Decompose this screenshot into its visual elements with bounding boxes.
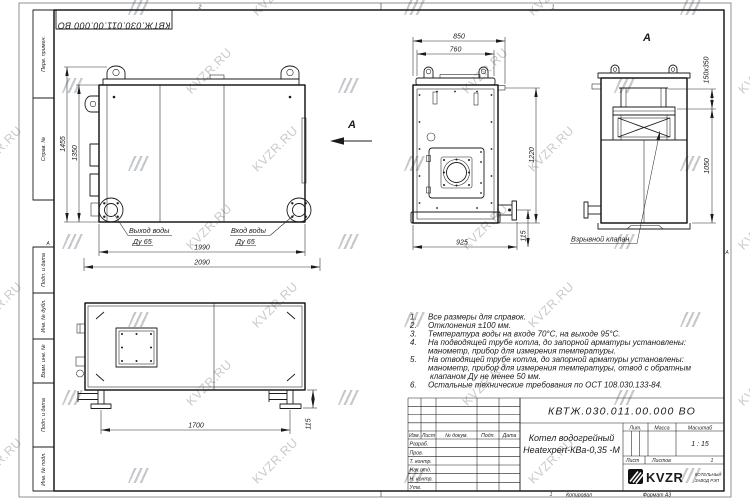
stamp-row-prov: Пров.	[410, 450, 424, 456]
stamp-designation: КВТЖ.030.011.00.000 ВО	[548, 406, 696, 418]
margin-label-perv-primen: Перв. примен.	[41, 36, 47, 72]
dim-flue-150x350: 150х350	[704, 56, 711, 83]
stamp-lit-label: Лит.	[628, 426, 641, 432]
rear-view: А	[570, 32, 716, 244]
stamp-row-t-kontr: Т. контр.	[410, 459, 432, 465]
stamp-header-list: Лист	[421, 433, 436, 439]
drawing-sheet: KVZR.RUKVZR.RUKVZR.RUKVZR.RUKVZR.RUKVZR.…	[0, 0, 750, 500]
top-designation-box: КВТЖ.030.011.00.000 ВО	[56, 10, 172, 31]
dim-1350: 1350	[72, 145, 79, 161]
view-a-arrow-label: А	[347, 119, 356, 131]
dim-850: 850	[453, 34, 465, 41]
note-line: Остальные технические требования по ОСТ …	[428, 381, 662, 390]
outlet-dn-label: Ду 65	[132, 237, 153, 246]
dim-760: 760	[450, 47, 462, 54]
kvzr-logo: KVZR КОТЕЛЬНЫЙ ЗАВОД РЭП	[628, 469, 721, 485]
stamp-header-doc-no: № докум.	[445, 433, 468, 439]
dim-925: 925	[456, 240, 468, 247]
dim-2090: 2090	[193, 260, 210, 267]
dim-115-front: 115	[521, 230, 528, 241]
note-num: 5.	[410, 355, 417, 364]
zone-number-bottom: 1	[550, 492, 553, 498]
copied-label: Копировал	[566, 492, 592, 498]
stamp-row-razrab: Разраб.	[410, 442, 429, 448]
margin-label-inv-dubl: Инв. № дубл.	[41, 299, 47, 332]
side-view: Выход воды Ду 65 Вход воды Ду 65 1990 20…	[60, 66, 372, 271]
kvzr-logo-sub1: КОТЕЛЬНЫЙ	[695, 472, 721, 477]
stamp-row-n-kontr: Н. контр.	[410, 476, 433, 482]
kvzr-logo-text: KVZR	[646, 470, 684, 485]
product-name-line2: Heatexpert-КВа-0,35 -М	[523, 445, 620, 455]
note-num: 4.	[410, 338, 417, 347]
dim-1220: 1220	[529, 147, 536, 163]
margin-columns: Перв. примен. Справ. № Подп. и дата Инв.…	[33, 10, 54, 491]
rear-view-title: А	[642, 32, 651, 44]
margin-label-podp-data-2: Подп. и дата	[41, 398, 47, 432]
designation-rotated: КВТЖ.030.011.00.000 ВО	[57, 21, 170, 31]
front-view: 850 760 1220 115 925	[411, 34, 540, 251]
technical-notes: 1. Все размеры для справок. 2. Отклонени…	[409, 313, 691, 390]
note-num: 6.	[410, 381, 417, 390]
stamp-header-data: Дата	[502, 433, 517, 439]
dim-1700: 1700	[188, 423, 204, 430]
stamp-header-podp: Подп.	[481, 433, 495, 439]
stamp-header-izm: Изм.	[409, 433, 420, 439]
zone-number-top-left: 2	[198, 5, 202, 11]
plan-view: 1700 115	[76, 303, 317, 434]
stamp-row-utv: Утв.	[410, 485, 422, 491]
margin-label-podp-data-1: Подп. и дата	[41, 253, 47, 287]
dim-1455: 1455	[60, 136, 67, 152]
stamp-listov-label: Листов	[651, 458, 671, 464]
zone-letter-left: А	[45, 241, 50, 247]
drawing-canvas: 2 1 1 А А Копировал Формат А3 Перв. прим…	[0, 0, 750, 500]
zone-number-top-right: 1	[552, 5, 555, 11]
stamp-row-nach-otd: Нач.отд.	[410, 468, 432, 474]
stamp-listov-value: 1	[711, 458, 714, 464]
zone-letter-right: А	[724, 250, 729, 256]
dim-1990: 1990	[194, 245, 210, 252]
margin-label-sprav-no: Справ. №	[41, 137, 47, 162]
outlet-label: Выход воды	[129, 226, 170, 235]
title-block: Изм. Лист № докум. Подп. Дата Разраб. Пр…	[408, 398, 724, 491]
stamp-scale-value: 1 : 15	[691, 441, 709, 448]
view-a-arrow-icon	[330, 137, 344, 145]
dim-115-plan: 115	[306, 418, 313, 429]
stamp-massa-label: Масса	[654, 426, 669, 432]
dim-1050: 1050	[704, 158, 711, 174]
inlet-dn-label: Ду 65	[235, 237, 256, 246]
format-label: Формат А3	[643, 492, 671, 498]
margin-label-vzam-inv: Взам. инв. №	[41, 344, 47, 378]
inlet-label: Вход воды	[231, 226, 267, 235]
explosion-valve-label: Взрывной клапан	[571, 235, 629, 244]
stamp-list-label: Лист	[625, 458, 640, 464]
stamp-masshtab-label: Масштаб	[688, 426, 713, 432]
product-name-line1: Котел водогрейный	[529, 433, 615, 443]
kvzr-logo-sub2: ЗАВОД РЭП	[695, 478, 720, 483]
margin-label-inv-podl: Инв. № подл.	[41, 452, 47, 485]
